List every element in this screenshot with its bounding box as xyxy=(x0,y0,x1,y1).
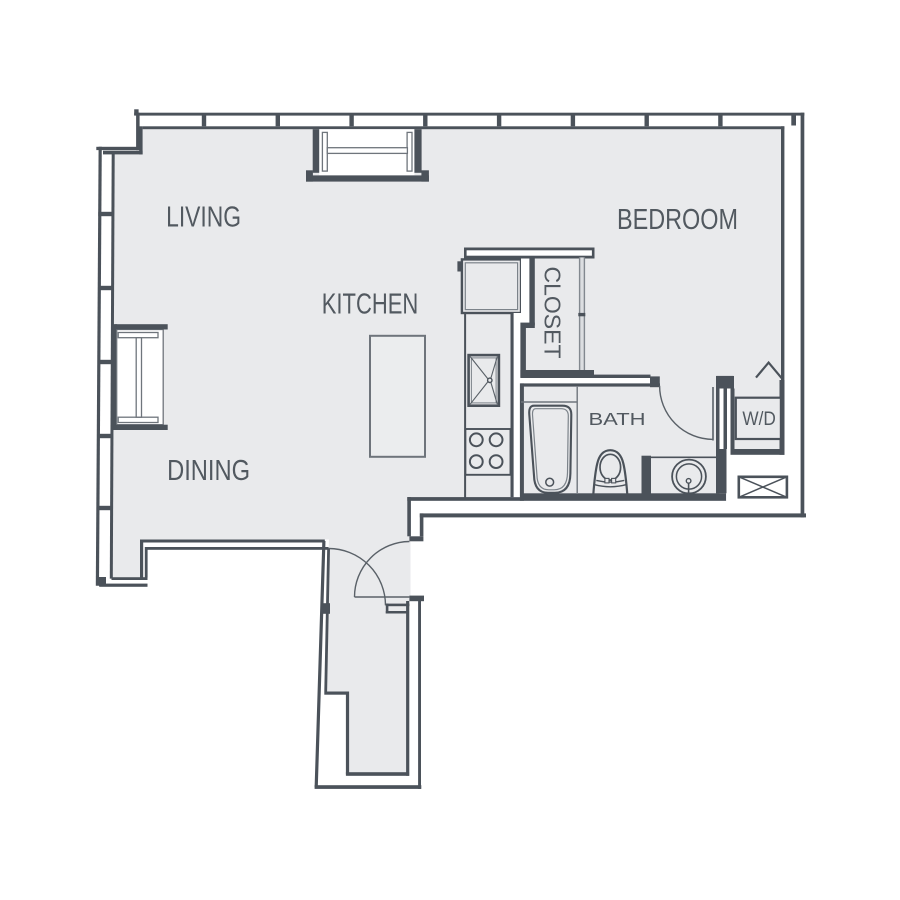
svg-text:BATH: BATH xyxy=(589,409,646,429)
svg-text:W/D: W/D xyxy=(742,409,776,430)
svg-text:LIVING: LIVING xyxy=(166,202,241,234)
svg-text:BEDROOM: BEDROOM xyxy=(617,204,738,236)
svg-text:CLOSET: CLOSET xyxy=(540,267,566,359)
svg-text:KITCHEN: KITCHEN xyxy=(322,288,419,320)
svg-text:DINING: DINING xyxy=(167,455,250,487)
